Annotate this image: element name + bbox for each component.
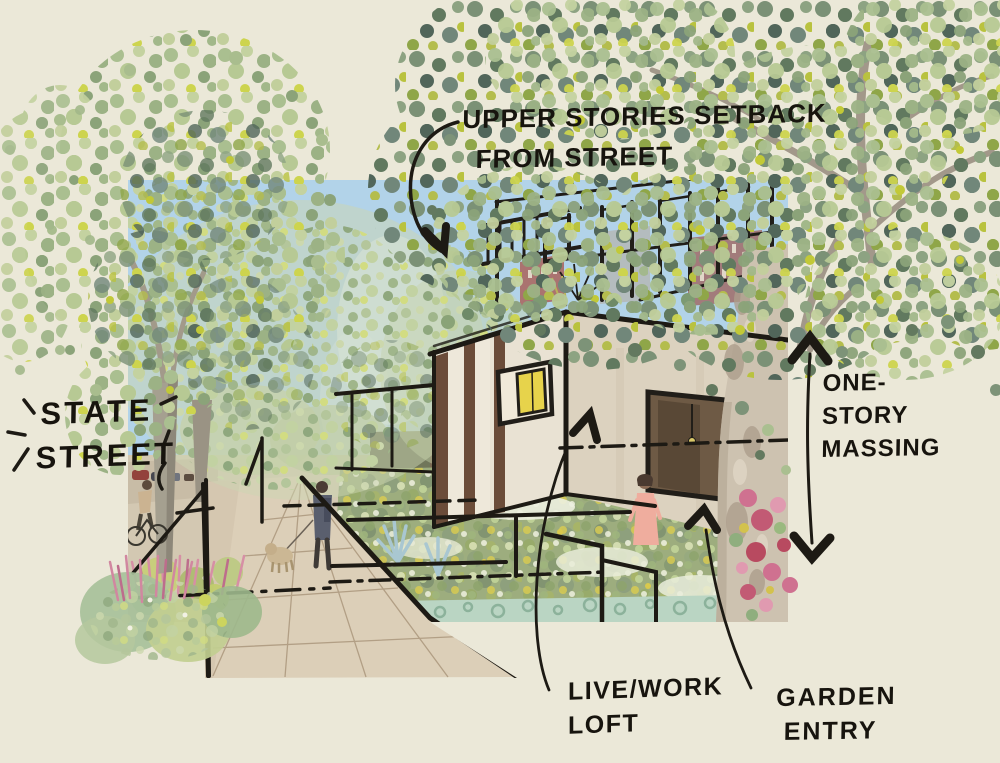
annotation-line: LOFT (568, 703, 723, 742)
annotation-state-street: STATE STREET (39, 388, 177, 481)
annotation-line: UPPER STORIES SETBACK (462, 93, 827, 139)
annotation-one-story-massing: ONE- STORY MASSING (821, 365, 942, 466)
annotation-live-work-loft: LIVE/WORK LOFT (568, 669, 723, 742)
annotation-line: ONE- (822, 365, 942, 400)
loft-window (498, 362, 552, 424)
illustration-canvas: UPPER STORIES SETBACK FROM STREET STATE … (0, 0, 1000, 763)
annotation-line: STORY (822, 398, 942, 433)
annotation-line: STATE (40, 388, 177, 437)
annotation-line: STREET (35, 432, 176, 481)
annotation-line: MASSING (821, 431, 941, 466)
annotation-line: FROM STREET (461, 133, 826, 179)
annotation-upper-stories-setback: UPPER STORIES SETBACK FROM STREET (461, 93, 827, 179)
annotation-garden-entry: GARDEN ENTRY (775, 679, 897, 749)
annotation-line: LIVE/WORK (568, 669, 723, 708)
annotation-line: GARDEN (776, 679, 897, 715)
annotation-line: ENTRY (775, 713, 896, 749)
